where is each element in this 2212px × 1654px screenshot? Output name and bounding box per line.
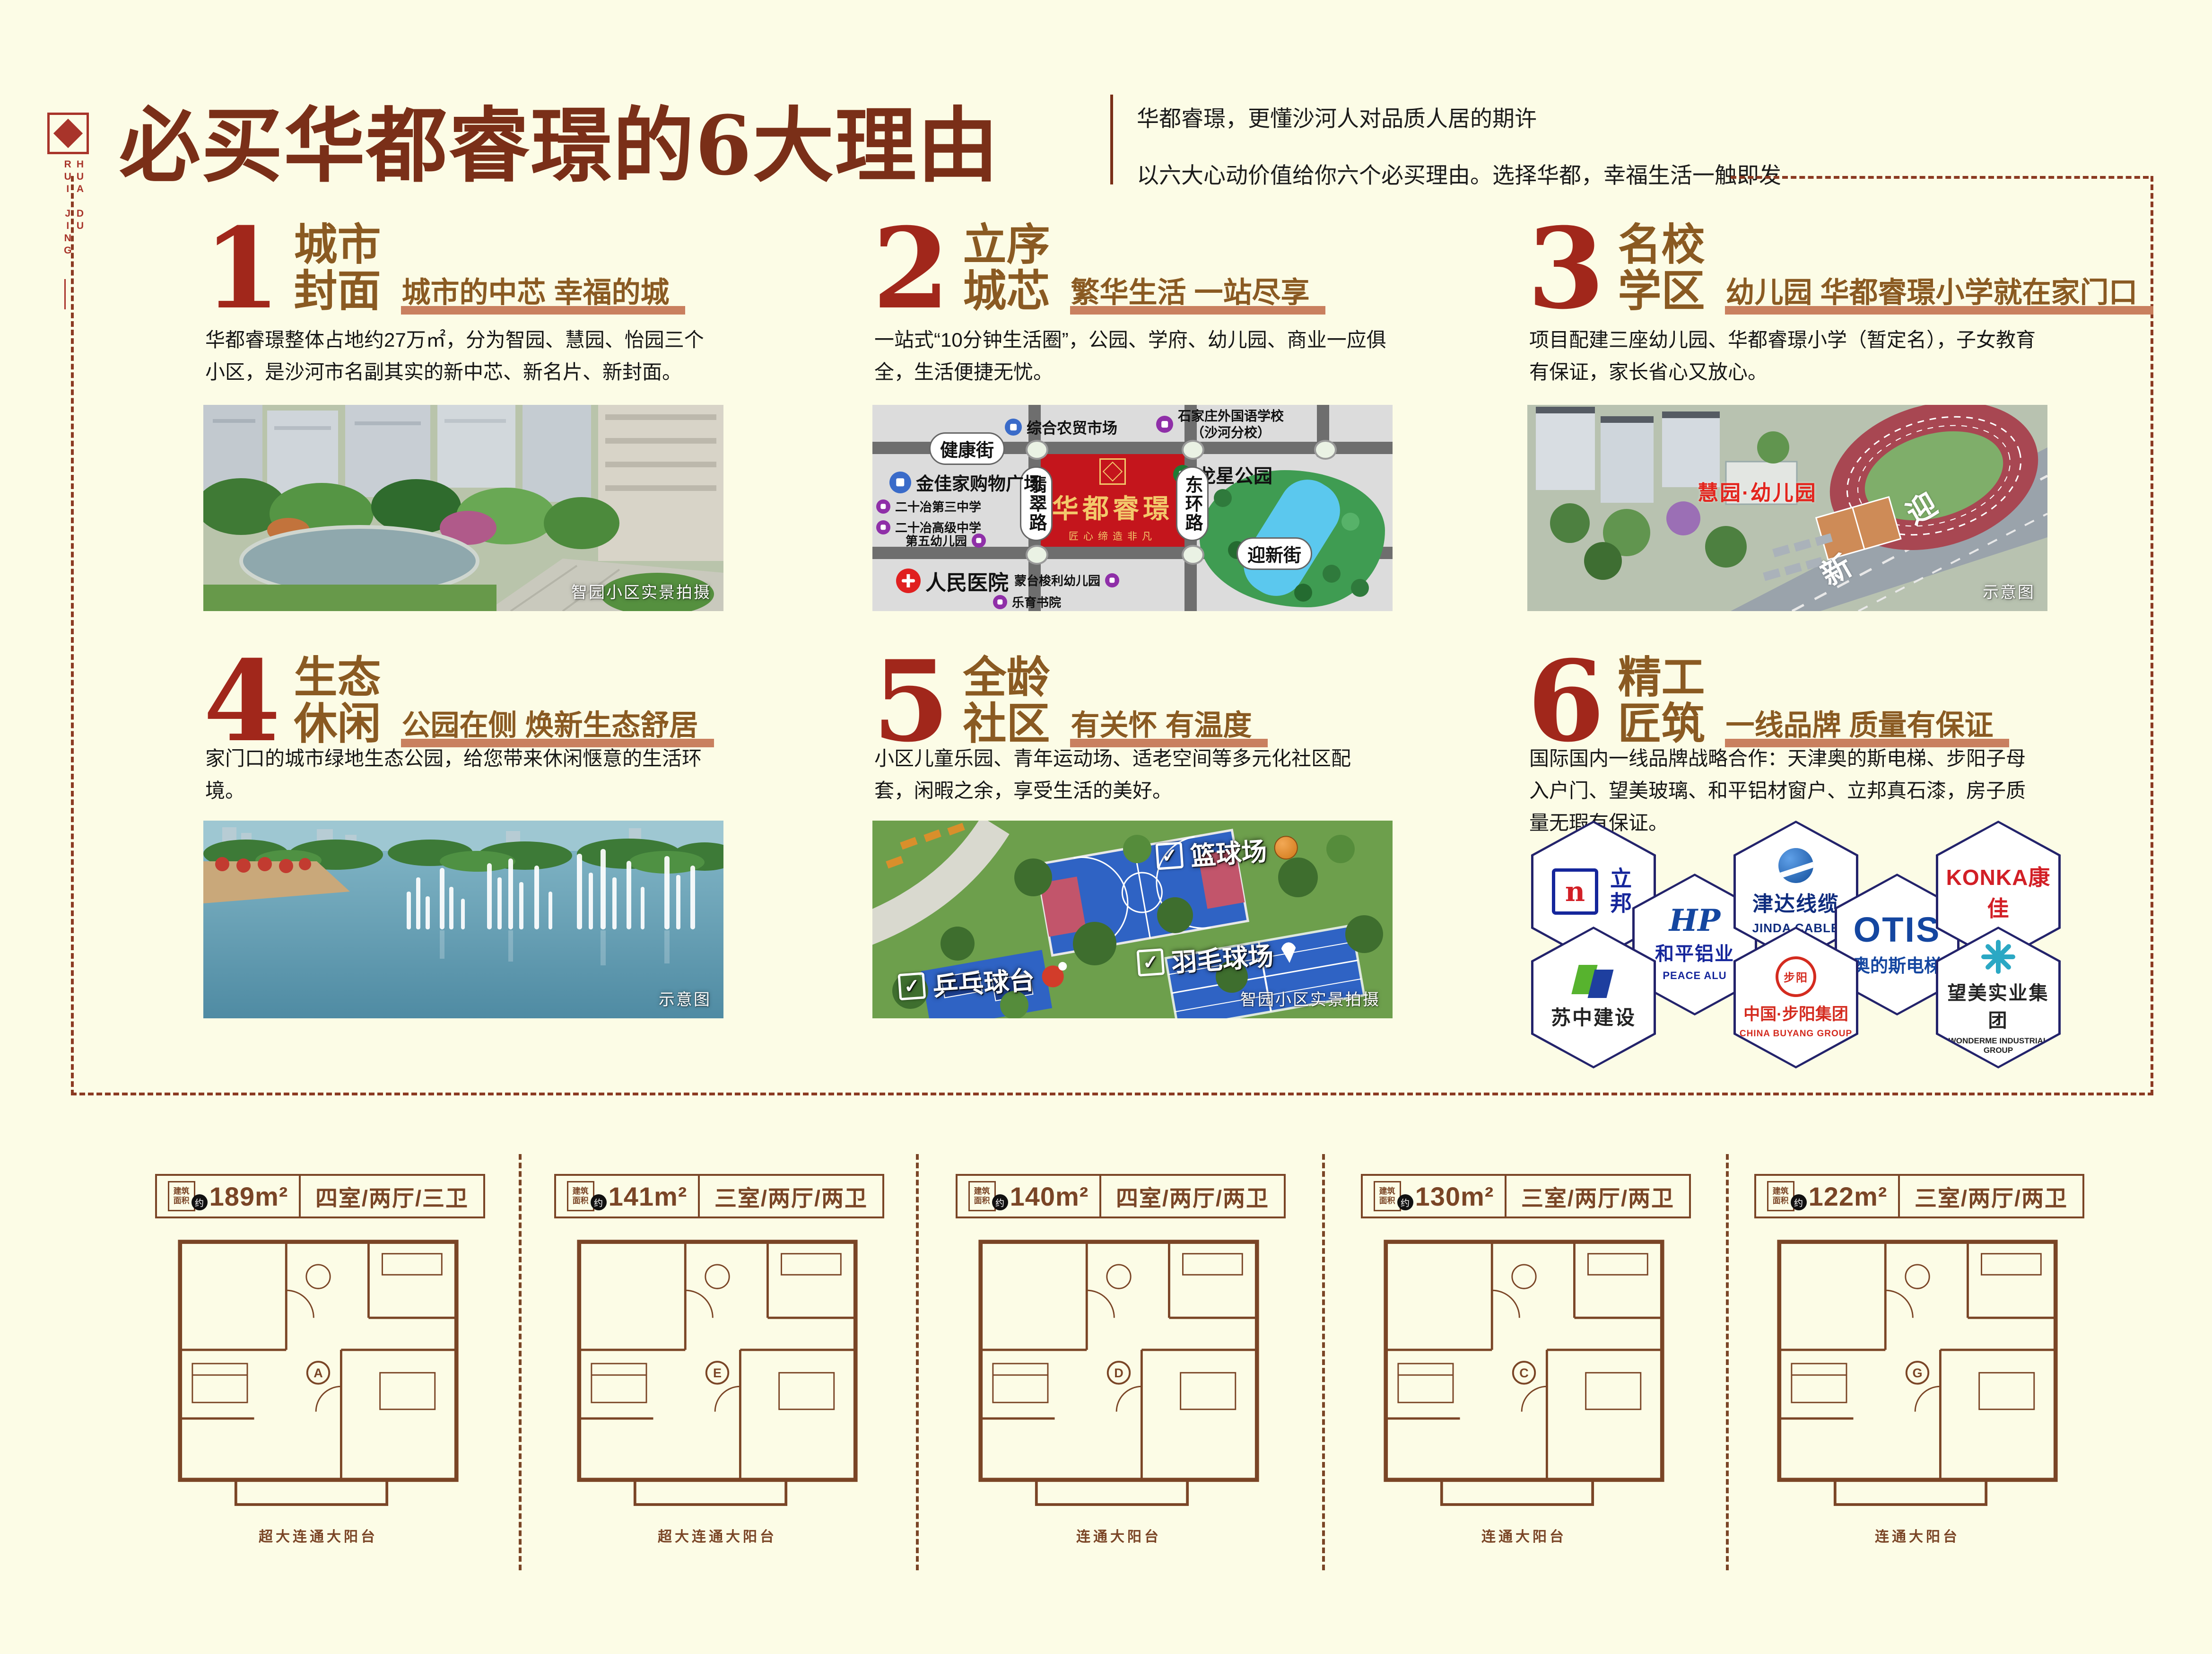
area-badge: 建筑面积 (1767, 1181, 1794, 1211)
area-badge: 建筑面积 (567, 1181, 594, 1211)
section-number: 4 (203, 656, 281, 747)
section-title-line1: 生态 (294, 655, 381, 701)
balcony-label: 连通大阳台 (1377, 1525, 1671, 1546)
section-number: 1 (203, 223, 281, 315)
section-number: 6 (1527, 656, 1605, 747)
suzhong-logo-icon (1572, 965, 1615, 998)
unit-letter: C (1519, 1365, 1529, 1380)
school-aerial-photo: 慧园·幼儿园 迎 新 示意图 (1527, 405, 2047, 611)
park-lake-art (203, 821, 723, 1018)
poi-montessori: 蒙台梭利幼儿园 (1014, 571, 1119, 589)
floorplan-3-drawing: D (972, 1235, 1265, 1519)
floorplan-2-header: 建筑面积 约 141m² 三室/两厅/两卫 (554, 1174, 884, 1218)
kindergarten-icon (1105, 573, 1119, 587)
jinda-sphere-logo-icon (1778, 848, 1813, 883)
floorplan-area: 189m² (209, 1181, 288, 1212)
subtitle-line1: 华都睿璟，更懂沙河人对品质人居的期许 (1137, 100, 1537, 133)
floorplan-divider (1322, 1154, 1325, 1570)
nippon-paint-logo-icon: n (1552, 868, 1598, 915)
school-icon (1156, 416, 1173, 433)
logo-divider (64, 279, 66, 309)
title-divider (1110, 95, 1113, 184)
section-number: 5 (872, 656, 950, 747)
pingpong-paddle-icon (1041, 964, 1064, 988)
section-title-line1: 名校 (1618, 222, 1705, 269)
section-tagline: 繁华生活 一站尽享 (1070, 269, 1326, 315)
poi-foreign-school: 石家庄外国语学校（沙河分校） (1156, 408, 1284, 441)
shopping-cart-icon (889, 472, 911, 493)
floorplan-area: 140m² (1010, 1181, 1089, 1212)
section-title-line2: 匠筑 (1618, 701, 1705, 748)
approx-badge: 约 (1791, 1194, 1807, 1210)
area-badge: 建筑面积 (968, 1181, 996, 1211)
section-tagline: 公园在侧 焕新生态舒居 (401, 701, 714, 747)
floorplan-5-drawing: G (1771, 1235, 2064, 1519)
approx-badge: 约 (1397, 1194, 1413, 1210)
section-number: 2 (872, 223, 950, 315)
floorplan-area: 141m² (609, 1181, 688, 1212)
poi-kindergarten5: 第五幼儿园 (906, 532, 986, 549)
project-name: 华都睿璟 (1052, 488, 1173, 526)
road-label-right: 东环路 (1176, 466, 1209, 541)
section-body: 华都睿璟整体占地约27万㎡，分为智园、慧园、怡园三个小区，是沙河市名副其实的新中… (205, 324, 718, 388)
section-title-line2: 学区 (1618, 269, 1705, 315)
market-icon (1005, 419, 1022, 436)
balcony-label: 连通大阳台 (972, 1525, 1265, 1546)
poi-hospital: 人民医院 (896, 566, 1009, 596)
floorplan-3-header: 建筑面积 约 140m² 四室/两厅/两卫 (956, 1174, 1286, 1218)
photo-caption: 示意图 (659, 987, 711, 1010)
area-badge: 建筑面积 (1374, 1181, 1401, 1211)
approx-badge: 约 (192, 1194, 208, 1210)
brand-honeycomb: n 立邦 HP 和平铝业 PEACE ALU 津达线缆 JINDA CABLE … (1527, 821, 2104, 1068)
checkbox-icon: ✓ (897, 972, 926, 1000)
street-label-top: 健康街 (929, 432, 1005, 465)
balcony-label: 超大连通大阳台 (571, 1525, 864, 1546)
section-number: 3 (1527, 223, 1605, 315)
street-label-bottom: 迎新街 (1237, 537, 1312, 570)
basketball-icon (1273, 835, 1298, 860)
hospital-cross-icon (896, 569, 921, 593)
peace-alu-logo-icon: HP (1669, 907, 1721, 935)
section-title-line2: 城芯 (963, 269, 1050, 315)
brand-name: 立邦 (1604, 867, 1635, 916)
section-title-line2: 社区 (963, 701, 1050, 748)
kindergarten-overlay-label: 慧园·幼儿园 (1698, 476, 1817, 506)
photo-caption: 智园小区实景拍摄 (1240, 987, 1380, 1010)
floorplan-rooms: 三室/两厅/两卫 (1900, 1176, 2082, 1216)
section-title-line1: 城市 (294, 222, 381, 269)
location-map: 华都睿璟 匠心缔造非凡 龙星公园 健康街 迎新街 翡翠路 东环路 综合 (872, 405, 1393, 611)
floorplan-4-drawing: C (1377, 1235, 1671, 1519)
shuttlecock-icon (1280, 942, 1298, 963)
academy-icon (993, 595, 1007, 609)
unit-letter: A (314, 1365, 323, 1380)
floorplan-5-header: 建筑面积 约 122m² 三室/两厅/两卫 (1754, 1174, 2084, 1218)
floorplan-rooms: 四室/两厅/两卫 (1101, 1176, 1284, 1216)
floorplan-rooms: 三室/两厅/两卫 (1507, 1176, 1689, 1216)
floorplan-divider (1726, 1154, 1729, 1570)
area-badge: 建筑面积 (168, 1181, 195, 1211)
section-title-line2: 休闲 (294, 701, 381, 748)
section-title-line1: 全龄 (963, 655, 1050, 701)
community-photo: 智园小区实景拍摄 (203, 405, 723, 611)
unit-letter: D (1114, 1365, 1123, 1380)
poi-school3: 二十冶第三中学 (876, 498, 981, 515)
floorplan-4-header: 建筑面积 约 130m² 三室/两厅/两卫 (1361, 1174, 1691, 1218)
floorplan-1-drawing: A (172, 1235, 465, 1519)
balcony-label: 连通大阳台 (1771, 1525, 2064, 1546)
unit-letter: E (713, 1365, 722, 1380)
section-body: 小区儿童乐园、青年运动场、适老空间等多元化社区配套，闲暇之余，享受生活的美好。 (874, 743, 1387, 807)
park-lake-photo: 示意图 (203, 821, 723, 1018)
poi-academy: 乐育书院 (993, 593, 1061, 611)
project-emblem-icon (1099, 458, 1126, 485)
photo-caption: 智园小区实景拍摄 (571, 579, 711, 603)
section-tagline: 幼儿园 华都睿璟小学就在家门口 (1725, 269, 2154, 315)
floorplan-1-header: 建筑面积 约 189m² 四室/两厅/三卫 (155, 1174, 485, 1218)
school-aerial-art (1527, 405, 2047, 611)
unit-letter: G (1912, 1365, 1922, 1380)
floorplan-divider (916, 1154, 919, 1570)
section-title-line1: 立序 (963, 222, 1050, 269)
sports-courts-photo: ✓ 篮球场 ✓ 羽毛球场 ✓ 乒乓球台 智园小区实景拍摄 (872, 821, 1393, 1018)
section-tagline: 城市的中芯 幸福的城 (401, 269, 686, 315)
checkbox-icon: ✓ (1155, 841, 1184, 870)
huadu-seal-icon (47, 113, 89, 154)
section-title-line1: 精工 (1618, 655, 1705, 701)
floorplan-area: 130m² (1415, 1181, 1494, 1212)
project-block: 华都睿璟 匠心缔造非凡 (1041, 454, 1184, 547)
poster: HUA DU RUI JING 必买华都睿璟的6大理由 华都睿璟，更懂沙河人对品… (0, 0, 2212, 1654)
photo-caption: 示意图 (1983, 579, 2035, 603)
poi-mall: 金佳家购物广场 (889, 469, 1042, 495)
floorplan-divider (519, 1154, 522, 1570)
school-icon (876, 499, 890, 514)
section-tagline: 有关怀 有温度 (1070, 701, 1268, 747)
section-body: 项目配建三座幼儿园、华都睿璟小学（暂定名），子女教育有保证，家长省心又放心。 (1529, 324, 2042, 388)
floorplan-rooms: 四室/两厅/三卫 (301, 1176, 483, 1216)
section-title-line2: 封面 (294, 269, 381, 315)
section-body: 家门口的城市绿地生态公园，给您带来休闲惬意的生活环境。 (205, 743, 718, 807)
kindergarten-icon (972, 534, 986, 548)
project-slogan: 匠心缔造非凡 (1069, 529, 1157, 543)
floorplan-rooms: 三室/两厅/两卫 (700, 1176, 882, 1216)
floorplan-2-drawing: E (571, 1235, 864, 1519)
checkbox-icon: ✓ (1136, 948, 1165, 976)
wonderme-star-logo-icon (1981, 940, 2015, 974)
section-tagline: 一线品牌 质量有保证 (1725, 701, 2010, 747)
section-body: 一站式“10分钟生活圈”，公园、学府、幼儿园、商业一应俱全，生活便捷无忧。 (874, 324, 1387, 388)
balcony-label: 超大连通大阳台 (172, 1525, 465, 1546)
approx-badge: 约 (992, 1194, 1008, 1210)
poi-market: 综合农贸市场 (1005, 416, 1117, 438)
approx-badge: 约 (591, 1194, 607, 1210)
buyang-ring-logo-icon: 步阳 (1776, 956, 1816, 997)
school-icon (876, 520, 890, 534)
floorplan-area: 122m² (1809, 1181, 1888, 1212)
